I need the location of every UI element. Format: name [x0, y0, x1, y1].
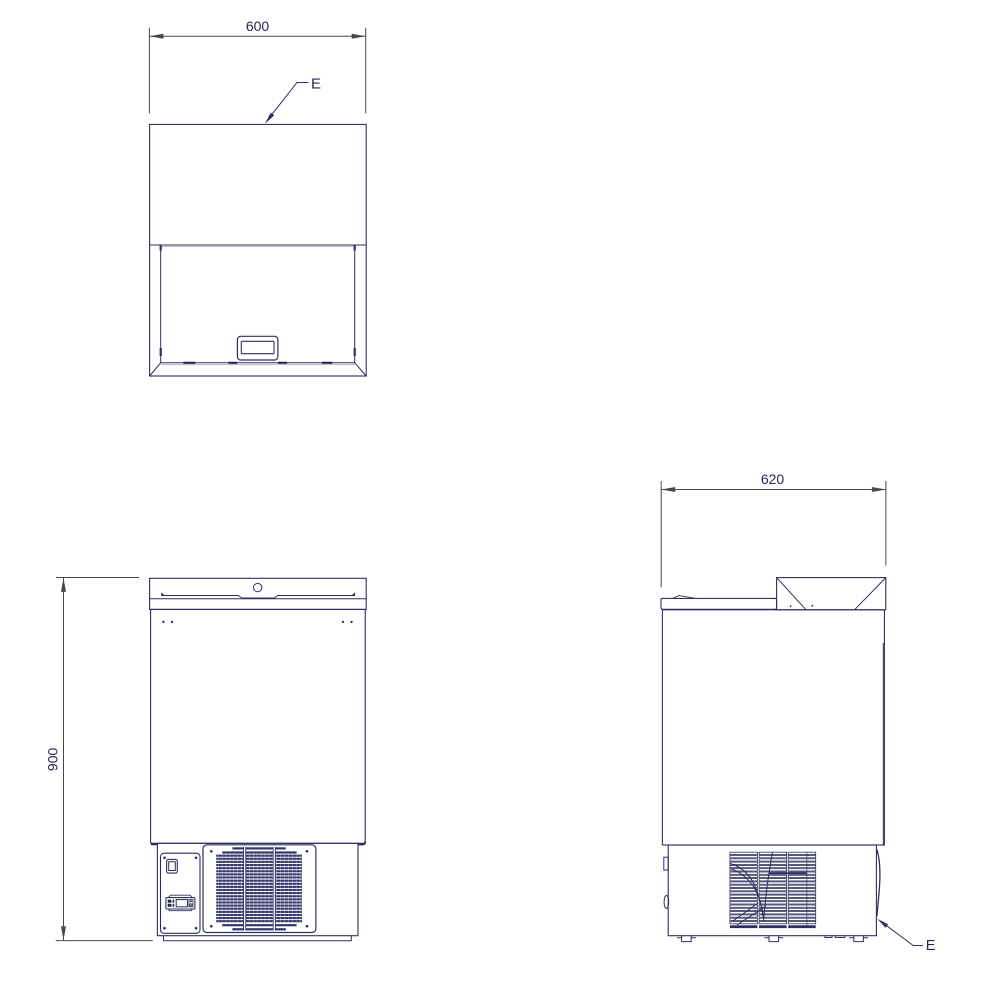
svg-text:900: 900: [44, 748, 60, 772]
svg-text:600: 600: [246, 18, 270, 34]
svg-text:E: E: [311, 76, 321, 93]
svg-text:E: E: [926, 938, 936, 954]
svg-text:620: 620: [761, 471, 785, 487]
